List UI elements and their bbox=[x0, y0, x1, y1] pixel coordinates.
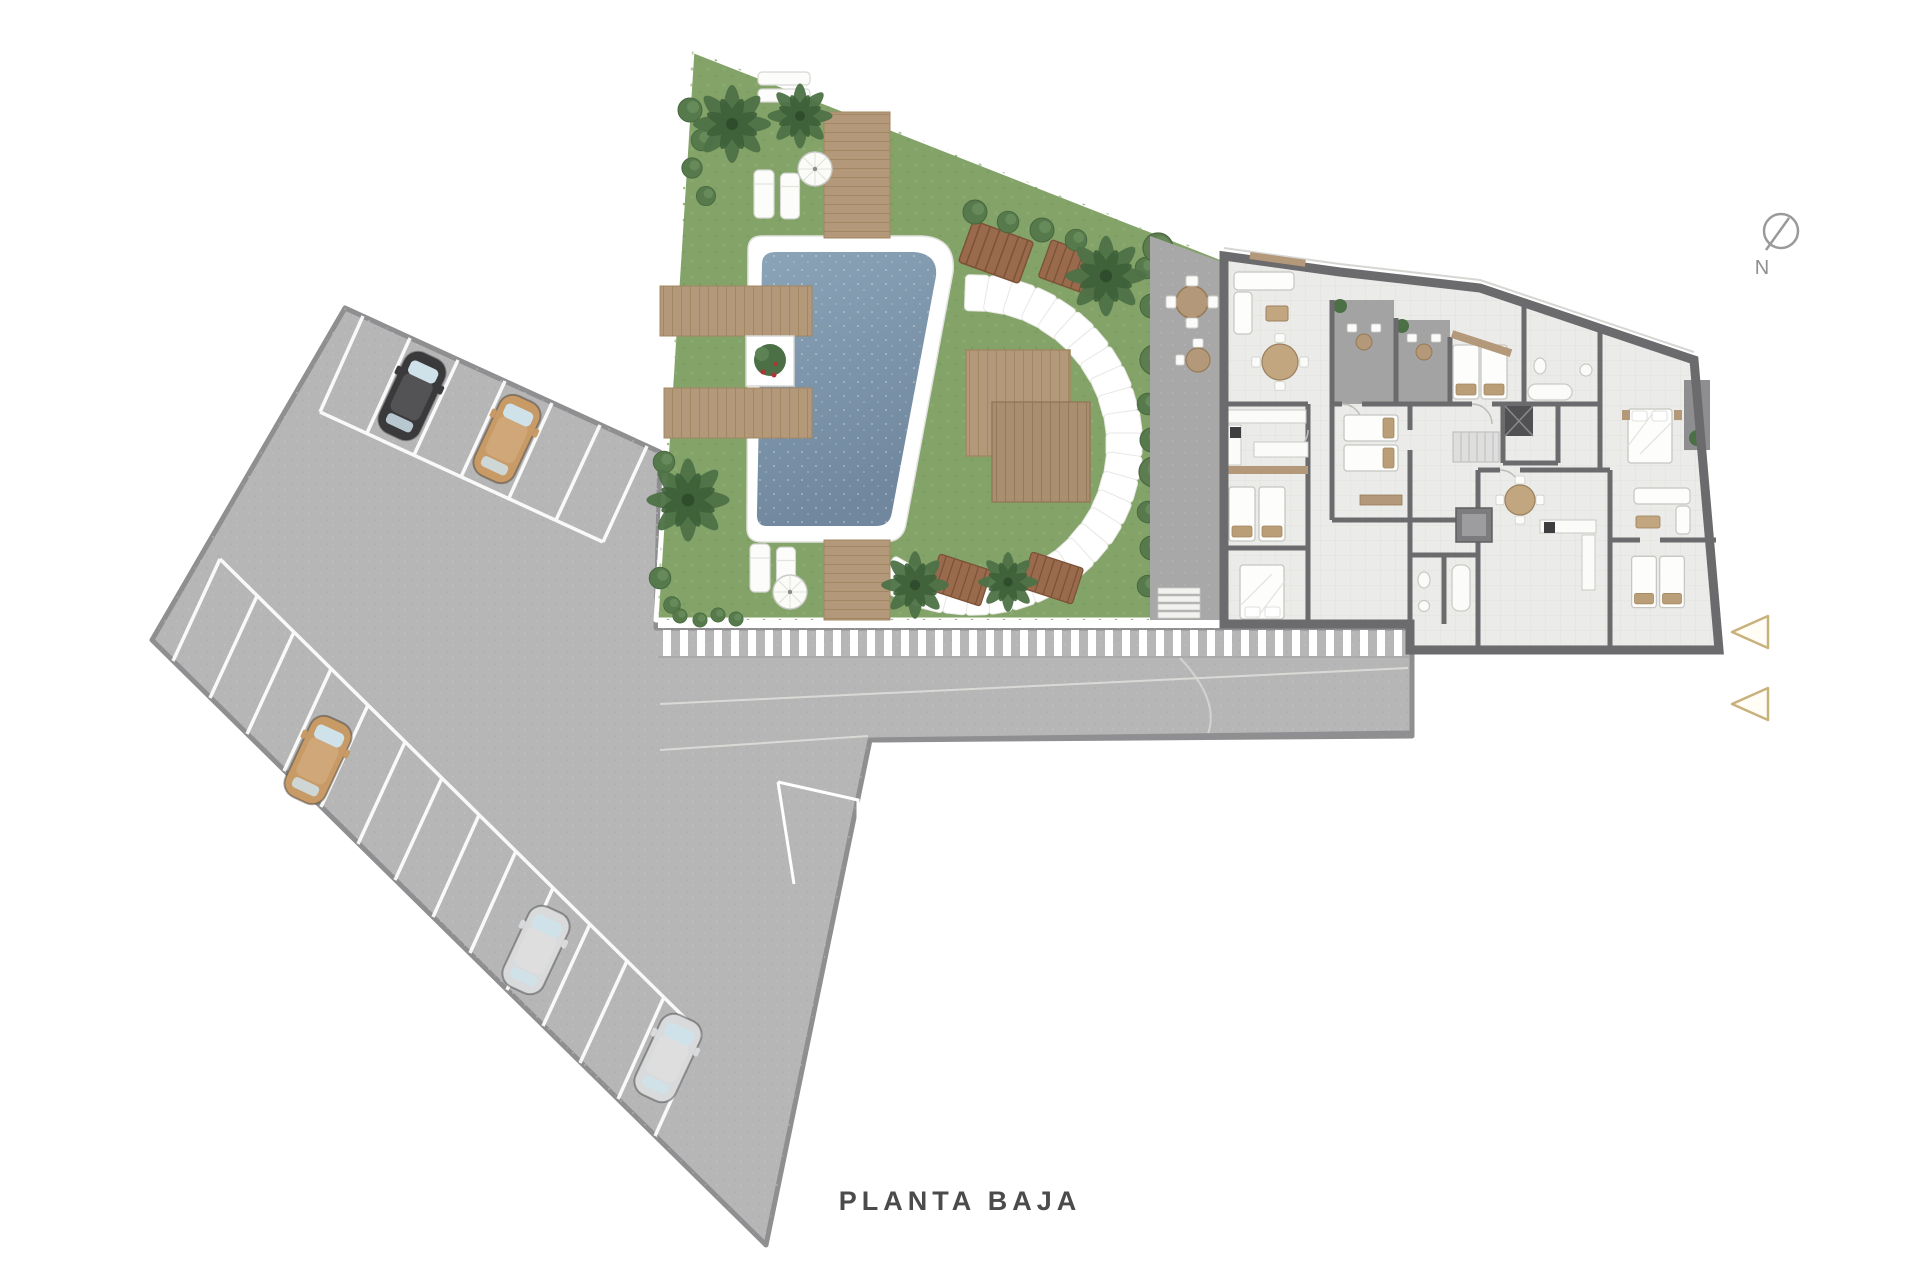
elevator bbox=[1505, 406, 1533, 436]
plan-title: PLANTA BAJA bbox=[839, 1186, 1082, 1217]
compass-north-label: N bbox=[1755, 257, 1769, 279]
compass: N bbox=[1755, 214, 1798, 279]
planter-box bbox=[746, 336, 794, 386]
compass-needle bbox=[1766, 218, 1789, 250]
site-plan-page: N PLANTA BAJA bbox=[0, 0, 1920, 1280]
parasol-top bbox=[798, 152, 832, 186]
entry-terrace bbox=[1150, 236, 1222, 620]
entry-arrows bbox=[1732, 616, 1768, 720]
entry-arrow-1 bbox=[1732, 616, 1768, 648]
bedroom-left-2 bbox=[1240, 565, 1284, 619]
parasol-bottom bbox=[773, 575, 807, 609]
apartment-building bbox=[1224, 248, 1719, 650]
site-plan-drawing: N bbox=[0, 0, 1920, 1280]
stairs bbox=[1453, 432, 1499, 462]
utility-shower bbox=[1456, 508, 1492, 542]
entry-arrow-2 bbox=[1732, 688, 1768, 720]
